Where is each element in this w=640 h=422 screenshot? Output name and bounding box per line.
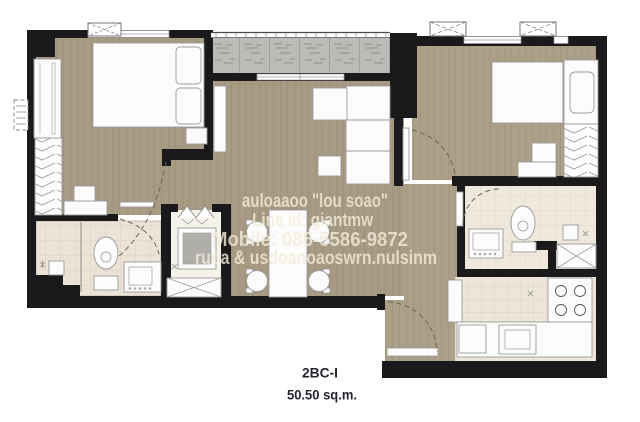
svg-text:50.50 sq.m.: 50.50 sq.m. (287, 388, 357, 403)
svg-text:Line id: giantmw: Line id: giantmw (252, 210, 374, 230)
svg-text:ruoa & usdoanoaoswrn.nulsinm: ruoa & usdoanoaoswrn.nulsinm (195, 248, 437, 269)
svg-text:auloaaoo "lou soao": auloaaoo "lou soao" (242, 191, 388, 212)
svg-text:2BC-I: 2BC-I (302, 365, 338, 381)
